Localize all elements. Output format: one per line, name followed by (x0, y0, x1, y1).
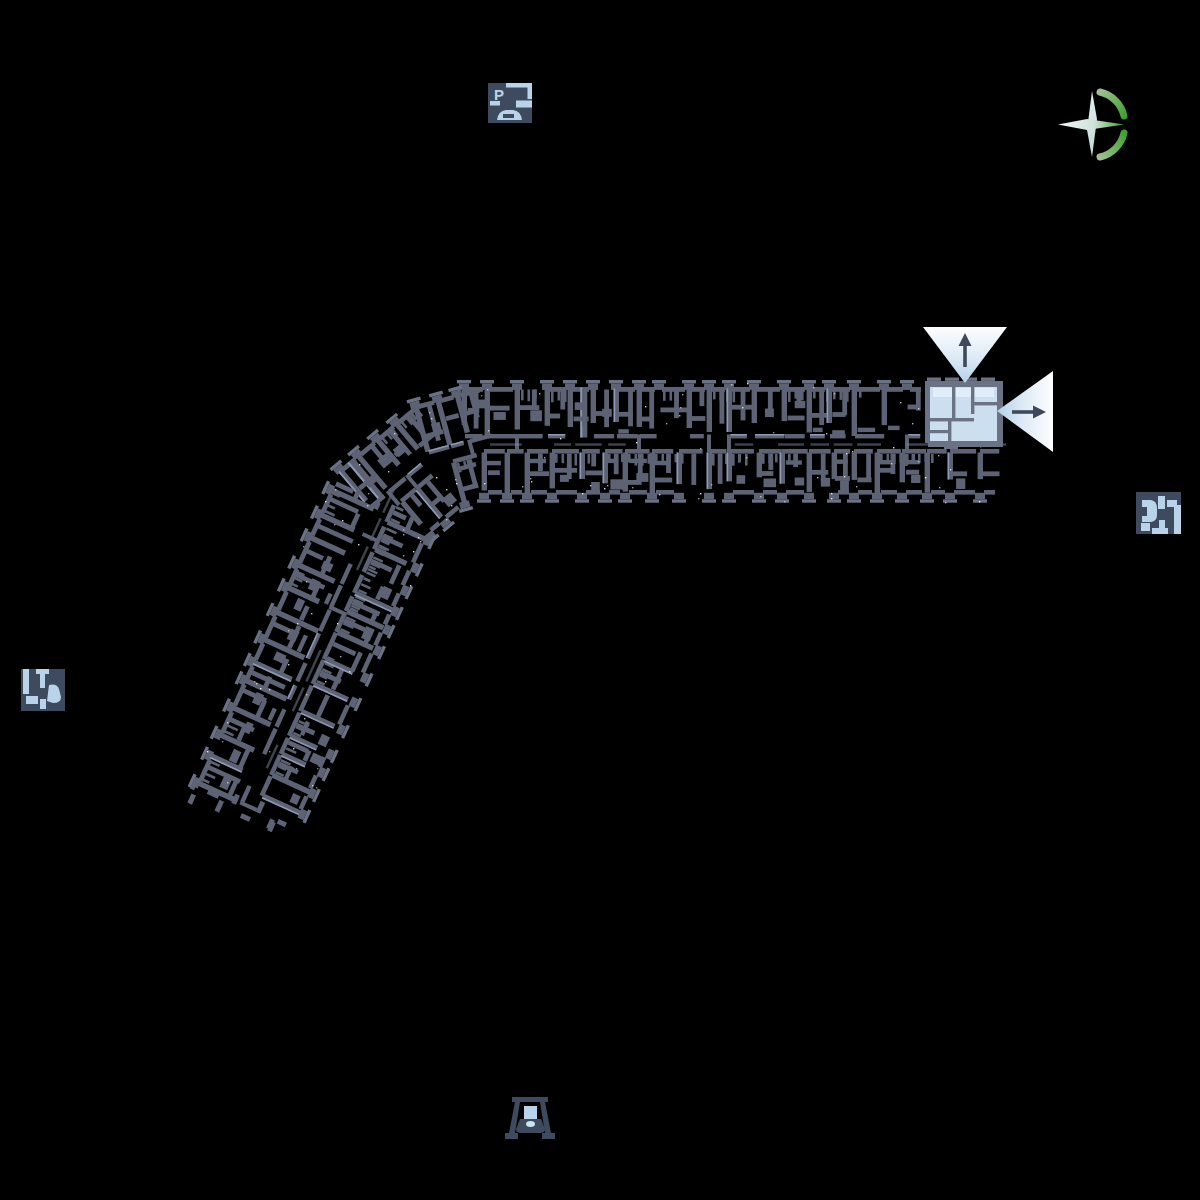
svg-text:P: P (494, 86, 504, 103)
